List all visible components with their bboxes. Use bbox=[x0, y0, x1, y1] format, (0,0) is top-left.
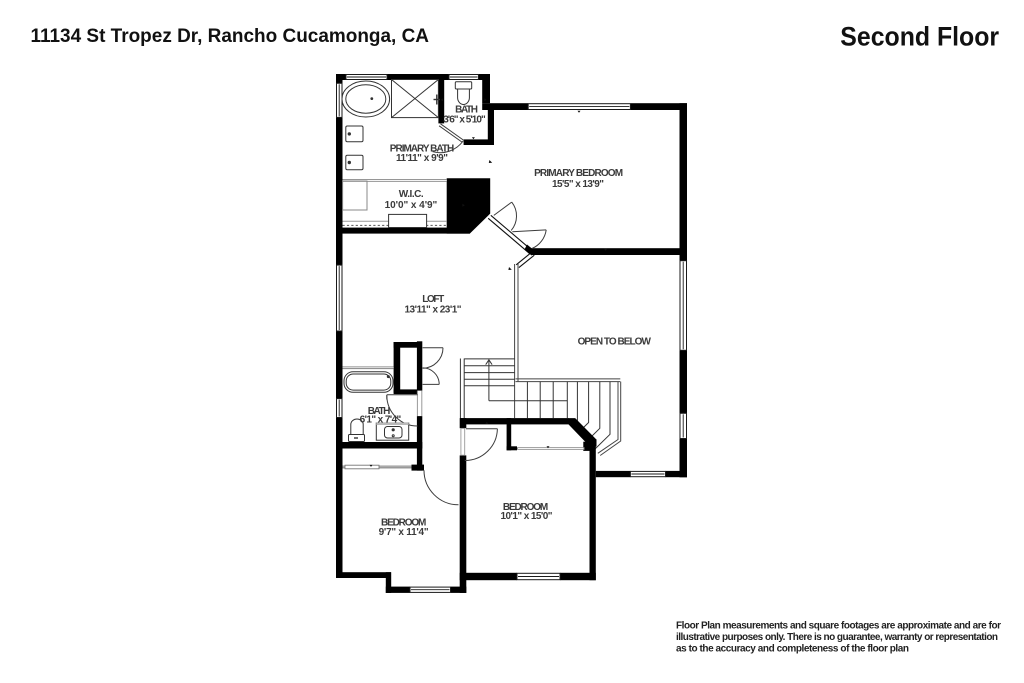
svg-text:OPEN TO BELOW: OPEN TO BELOW bbox=[578, 336, 652, 347]
svg-text:10'0" x 4'9": 10'0" x 4'9" bbox=[385, 200, 438, 211]
svg-text:11134 St Tropez Dr, Rancho Cuc: 11134 St Tropez Dr, Rancho Cucamonga, CA bbox=[31, 25, 430, 47]
svg-text:as to the accuracy and complet: as to the accuracy and completeness of t… bbox=[676, 644, 909, 655]
svg-text:Floor Plan measurements and sq: Floor Plan measurements and square foota… bbox=[676, 621, 1001, 632]
svg-text:13'11" x 23'1": 13'11" x 23'1" bbox=[405, 305, 462, 316]
svg-text:9'7" x 11'4": 9'7" x 11'4" bbox=[379, 527, 429, 538]
svg-text:3'6" x 5'10": 3'6" x 5'10" bbox=[443, 115, 486, 126]
svg-text:11'11" x 9'9": 11'11" x 9'9" bbox=[396, 153, 448, 164]
svg-text:Second Floor: Second Floor bbox=[840, 21, 999, 51]
svg-text:6'1" x 7'4": 6'1" x 7'4" bbox=[360, 415, 402, 426]
svg-text:PRIMARY BEDROOM: PRIMARY BEDROOM bbox=[534, 168, 623, 179]
svg-text:W.I.C.: W.I.C. bbox=[399, 189, 424, 200]
svg-text:10'1" x 15'0": 10'1" x 15'0" bbox=[501, 511, 553, 522]
svg-text:illustrative purposes only. Th: illustrative purposes only. There is no … bbox=[676, 632, 998, 643]
svg-text:LOFT: LOFT bbox=[422, 294, 444, 305]
svg-text:15'5" x 13'9": 15'5" x 13'9" bbox=[552, 179, 604, 190]
